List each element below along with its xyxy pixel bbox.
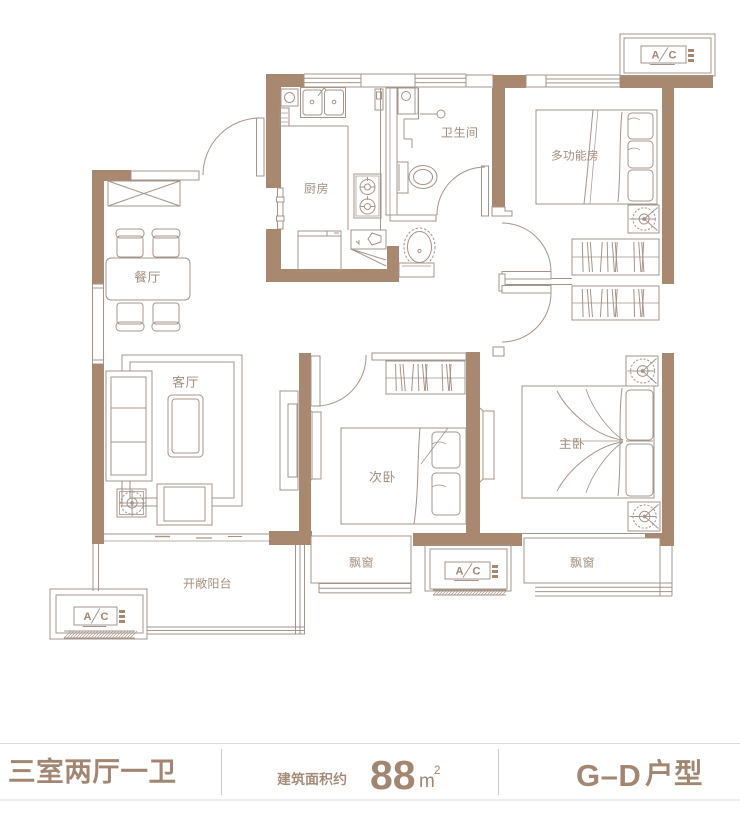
svg-text:88: 88 <box>370 752 416 798</box>
svg-text:m: m <box>419 771 435 792</box>
svg-text:C: C <box>473 565 481 577</box>
svg-text:C: C <box>101 611 109 623</box>
svg-text:A: A <box>84 611 92 623</box>
svg-text:2: 2 <box>434 765 440 777</box>
svg-text:C: C <box>669 49 677 61</box>
svg-text:G–D: G–D <box>576 758 641 793</box>
svg-text:A: A <box>456 565 464 577</box>
svg-text:A: A <box>652 49 660 61</box>
